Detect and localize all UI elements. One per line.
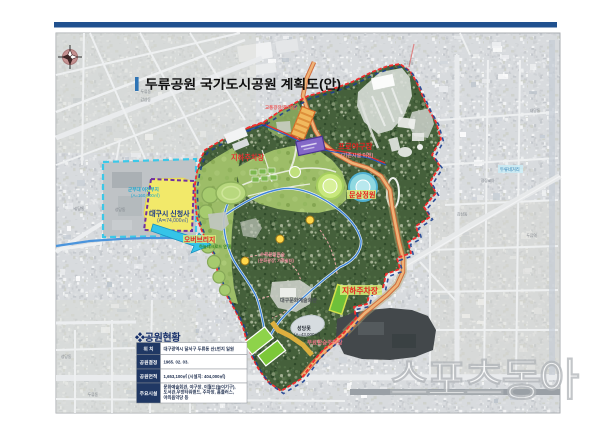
svg-text:대구문화예술회관: 대구문화예술회관 [280, 297, 317, 304]
svg-text:❖공원현황: ❖공원현황 [134, 331, 181, 344]
svg-text:스포츠동아: 스포츠동아 [389, 356, 579, 405]
svg-text:야외음악당 등: 야외음악당 등 [164, 394, 189, 401]
svg-text:군부대 이전부지: 군부대 이전부지 [128, 186, 159, 193]
svg-text:(기존시설 이전): (기존시설 이전) [341, 152, 374, 159]
svg-text:프로야구장: 프로야구장 [338, 141, 373, 151]
svg-text:광장코아: 광장코아 [481, 178, 495, 183]
svg-text:성당못: 성당못 [297, 325, 311, 332]
svg-text:두류역: 두류역 [526, 233, 537, 238]
svg-text:(문화광장, 가족쉼터): (문화광장, 가족쉼터) [258, 257, 295, 264]
svg-text:감삼동: 감삼동 [403, 60, 414, 65]
svg-text:수목원일원숲: 수목원일원숲 [260, 251, 285, 258]
svg-text:주요시설: 주요시설 [140, 390, 158, 397]
svg-text:(A=43,000㎡): (A=43,000㎡) [294, 331, 321, 337]
svg-text:오버브리지: 오버브리지 [184, 235, 215, 244]
svg-text:지하주차장: 지하주차장 [342, 286, 379, 296]
svg-text:지하주차장: 지하주차장 [231, 153, 264, 162]
svg-text:공원결정: 공원결정 [140, 359, 158, 366]
svg-text:문살정원: 문살정원 [349, 191, 375, 200]
svg-text:두류공원 국가도시공원 계획도(안): 두류공원 국가도시공원 계획도(안) [145, 77, 341, 92]
svg-text:1,653,100㎡ (시설지: 404,000㎡): 1,653,100㎡ (시설지: 404,000㎡) [164, 373, 226, 380]
svg-text:두류네거리: 두류네거리 [500, 166, 520, 173]
svg-text:공원면적: 공원면적 [140, 373, 158, 380]
svg-text:성당동: 성당동 [74, 206, 85, 211]
svg-text:무료환승주차장: 무료환승주차장 [307, 339, 342, 347]
svg-text:(A≒74,000㎡): (A≒74,000㎡) [157, 217, 188, 224]
svg-text:교통광장(주차장): 교통광장(주차장) [265, 104, 297, 111]
svg-text:감삼동: 감삼동 [140, 97, 151, 102]
svg-text:위 치: 위 치 [143, 346, 153, 353]
svg-text:성당동: 성당동 [150, 208, 161, 213]
svg-text:1965. 02. 03.: 1965. 02. 03. [164, 360, 189, 365]
svg-text:하늘데크로드 연결: 하늘데크로드 연결 [199, 243, 231, 250]
svg-text:성당동: 성당동 [61, 354, 72, 359]
svg-text:내당동: 내당동 [530, 108, 541, 113]
svg-text:감삼동: 감삼동 [457, 211, 468, 216]
svg-text:대구광역시 달서구 두류동 산1번지 일원: 대구광역시 달서구 두류동 산1번지 일원 [164, 345, 234, 352]
svg-text:두류동: 두류동 [88, 392, 99, 397]
svg-text:성당동: 성당동 [115, 207, 126, 212]
svg-text:(A=160,000㎡): (A=160,000㎡) [131, 192, 160, 198]
